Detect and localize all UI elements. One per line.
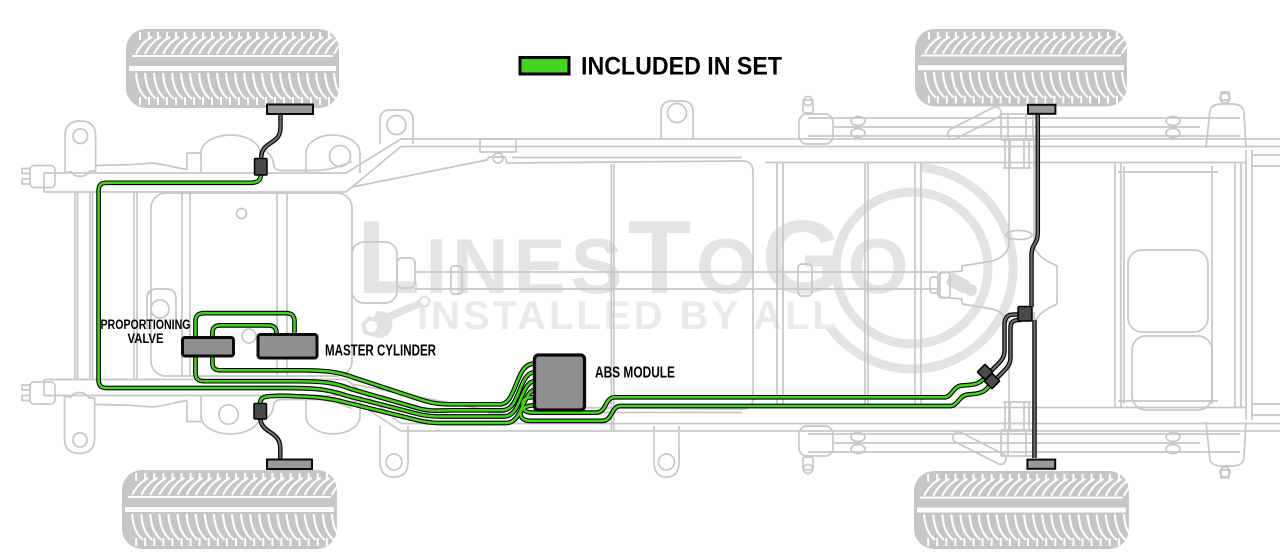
- svg-text:VALVE: VALVE: [128, 331, 164, 346]
- svg-text:ABS MODULE: ABS MODULE: [595, 365, 675, 382]
- svg-text:INCLUDED IN SET: INCLUDED IN SET: [581, 53, 782, 81]
- svg-text:MASTER CYLINDER: MASTER CYLINDER: [325, 343, 436, 360]
- svg-text:PROPORTIONING: PROPORTIONING: [101, 317, 191, 332]
